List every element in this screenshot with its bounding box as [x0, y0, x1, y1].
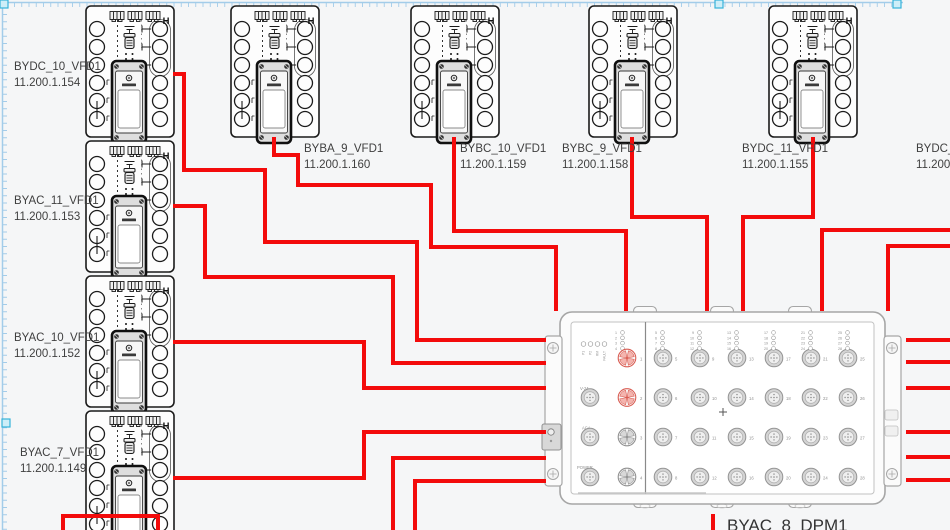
svg-text:7: 7: [655, 342, 657, 346]
svg-text:1: 1: [615, 331, 617, 335]
svg-text:20: 20: [764, 347, 768, 351]
vfd-device-BYAC_11_VFD1[interactable]: H: [86, 141, 174, 278]
vfd-device-BYDC_11_VFD1[interactable]: H: [769, 6, 857, 143]
svg-text:16: 16: [749, 476, 754, 481]
selection-handle[interactable]: [893, 0, 901, 8]
vfd-device-BYBA_9_VFD1[interactable]: H: [231, 6, 319, 143]
vfd-corner-mark: H: [163, 16, 170, 27]
device-name-label: BYBA_9_VFD1: [304, 143, 383, 155]
dpm-status-led-label: P2: [589, 351, 593, 355]
device-name-label: BYDC_10_VFD1: [14, 61, 101, 73]
vfd-corner-mark: H: [163, 286, 170, 297]
device-name-label: BYAC_11_VFD1: [14, 195, 99, 207]
svg-text:20: 20: [786, 476, 791, 481]
svg-text:12: 12: [690, 347, 694, 351]
svg-text:6: 6: [655, 336, 657, 340]
device-ip-label: 11.200.1: [916, 159, 950, 171]
dpm-name-label: BYAC_8_DPM1: [727, 516, 848, 530]
svg-text:10: 10: [712, 396, 717, 401]
svg-text:9: 9: [692, 331, 694, 335]
svg-text:17: 17: [786, 357, 791, 362]
device-ip-label: 11.200.1.160: [304, 159, 370, 171]
svg-text:26: 26: [860, 396, 865, 401]
svg-text:23: 23: [823, 436, 828, 441]
device-name-label: BYBC_9_VFD1: [562, 143, 642, 155]
svg-text:13: 13: [749, 357, 754, 362]
svg-text:23: 23: [801, 342, 805, 346]
vfd-device-BYAC_10_VFD1[interactable]: H: [86, 276, 174, 413]
diagram-canvas[interactable]: HHHHHHHH P1P2RMFAULT12341234V-24ACAPOWER…: [0, 0, 950, 530]
svg-text:24: 24: [801, 347, 805, 351]
vfd-device-BYDC_10_VFD1[interactable]: H: [86, 6, 174, 143]
svg-text:10: 10: [690, 336, 694, 340]
svg-text:19: 19: [764, 342, 768, 346]
svg-text:14: 14: [727, 336, 731, 340]
svg-text:3: 3: [615, 342, 617, 346]
device-ip-label: 11.200.1.153: [14, 211, 80, 223]
svg-text:25: 25: [838, 331, 842, 335]
vfd-device-BYBC_9_VFD1[interactable]: H: [589, 6, 677, 143]
device-ip-label: 11.200.1.155: [742, 159, 808, 171]
svg-text:27: 27: [838, 342, 842, 346]
svg-text:12: 12: [712, 476, 717, 481]
vfd-corner-mark: H: [163, 421, 170, 432]
device-ip-label: 11.200.1.159: [460, 159, 526, 171]
svg-text:21: 21: [801, 331, 805, 335]
svg-text:18: 18: [764, 336, 768, 340]
svg-text:19: 19: [786, 436, 791, 441]
device-name-label: BYDC_12: [916, 143, 950, 155]
svg-text:22: 22: [823, 396, 828, 401]
svg-text:22: 22: [801, 336, 805, 340]
dpm-status-led-label: RM: [596, 351, 600, 356]
svg-text:11: 11: [690, 342, 694, 346]
dpm-status-led-label: P1: [582, 351, 586, 355]
device-ip-label: 11.200.1.149: [20, 463, 86, 475]
svg-text:26: 26: [838, 336, 842, 340]
network-cable-9[interactable]: [632, 137, 707, 311]
vfd-corner-mark: H: [846, 16, 853, 27]
selection-handle[interactable]: [0, 0, 8, 8]
vfd-corner-mark: H: [308, 16, 315, 27]
svg-text:4: 4: [615, 347, 617, 351]
device-name-label: BYDC_11_VFD1: [742, 143, 828, 155]
vfd-device-BYAC_7_VFD1[interactable]: H: [86, 411, 174, 530]
svg-text:8: 8: [655, 347, 657, 351]
svg-text:21: 21: [823, 357, 828, 362]
device-name-label: BYAC_7_VFD1: [20, 447, 99, 459]
device-ip-label: 11.200.1.154: [14, 77, 81, 89]
device-name-label: BYBC_10_VFD1: [460, 143, 546, 155]
selection-handle[interactable]: [2, 419, 10, 427]
svg-text:18: 18: [786, 396, 791, 401]
svg-text:13: 13: [727, 331, 731, 335]
svg-text:5: 5: [655, 331, 657, 335]
svg-text:14: 14: [749, 396, 754, 401]
dpm-status-led-label: FAULT: [603, 351, 607, 361]
svg-text:2: 2: [615, 336, 617, 340]
selection-handle[interactable]: [715, 0, 723, 8]
svg-text:28: 28: [860, 476, 865, 481]
network-cable-12[interactable]: [888, 246, 950, 311]
device-name-label: BYAC_10_VFD1: [14, 332, 99, 344]
device-ip-label: 11.200.1.152: [14, 348, 80, 360]
svg-text:16: 16: [727, 347, 731, 351]
svg-text:17: 17: [764, 331, 768, 335]
svg-text:11: 11: [712, 436, 717, 441]
network-cable-4[interactable]: [173, 432, 546, 478]
svg-text:24: 24: [823, 476, 828, 481]
svg-text:15: 15: [749, 436, 754, 441]
network-cable-6[interactable]: [415, 481, 546, 530]
svg-text:28: 28: [838, 347, 842, 351]
svg-text:25: 25: [860, 357, 865, 362]
device-ip-label: 11.200.1.158: [562, 159, 628, 171]
vfd-corner-mark: H: [666, 16, 673, 27]
vfd-corner-mark: H: [488, 16, 495, 27]
svg-text:15: 15: [727, 342, 731, 346]
vfd-corner-mark: H: [163, 151, 170, 162]
vfd-device-BYBC_10_VFD1[interactable]: H: [411, 6, 499, 143]
dpm-device[interactable]: P1P2RMFAULT12341234V-24ACAPOWER556677889…: [542, 307, 901, 509]
svg-text:27: 27: [860, 436, 865, 441]
